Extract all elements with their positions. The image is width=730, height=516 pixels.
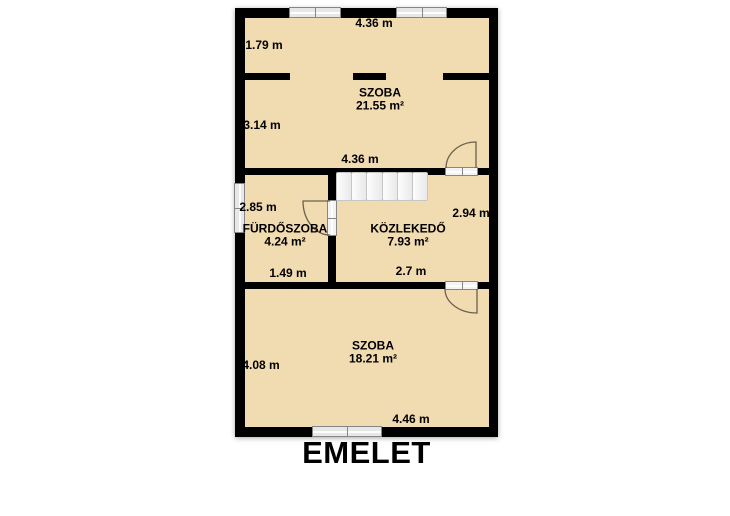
knee-wall-right-segment xyxy=(443,73,489,80)
stair-step xyxy=(366,172,382,201)
room-label-furdoszoba: FÜRDŐSZOBA 4.24 m² xyxy=(243,223,328,248)
knee-wall-middle-segment xyxy=(353,73,386,80)
floor-plan-title: EMELET xyxy=(235,436,498,469)
room-area: 7.93 m² xyxy=(370,235,445,248)
dimension-label-furdoszoba-height: 2.85 m xyxy=(239,200,276,214)
room-area: 21.55 m² xyxy=(356,99,404,112)
room-area: 18.21 m² xyxy=(349,352,397,365)
floor-plan-canvas: 4.36 m 1.79 m 3.14 m 4.36 m 2.85 m 1.49 … xyxy=(0,0,730,516)
stair-step xyxy=(412,172,428,201)
window-top-left xyxy=(289,7,341,18)
door-opening-szoba-bottom xyxy=(445,281,478,290)
dimension-label-furdoszoba-width: 1.49 m xyxy=(269,266,306,280)
stairs xyxy=(336,172,428,201)
door-opening-furdoszoba xyxy=(327,200,337,236)
stair-step xyxy=(397,172,413,201)
window-top-right xyxy=(396,7,447,18)
room-name: SZOBA xyxy=(349,340,397,353)
room-name: FÜRDŐSZOBA xyxy=(243,223,328,236)
stair-step xyxy=(382,172,398,201)
knee-wall-left-segment xyxy=(245,73,290,80)
room-label-kozlekedo: KÖZLEKEDŐ 7.93 m² xyxy=(370,223,445,248)
dimension-label-szoba-bottom-height: 4.08 m xyxy=(242,358,279,372)
room-name: KÖZLEKEDŐ xyxy=(370,223,445,236)
dimension-label-szoba-top-width: 4.36 m xyxy=(341,152,378,166)
stair-step xyxy=(336,172,352,201)
room-area: 4.24 m² xyxy=(243,235,328,248)
door-opening-szoba-top xyxy=(445,167,478,176)
room-label-szoba-top: SZOBA 21.55 m² xyxy=(356,87,404,112)
dimension-label-kozlekedo-height: 2.94 m xyxy=(452,206,489,220)
stair-step xyxy=(351,172,367,201)
room-name: SZOBA xyxy=(356,87,404,100)
dimension-label-szoba-bottom-width: 4.46 m xyxy=(392,412,429,426)
room-label-szoba-bottom: SZOBA 18.21 m² xyxy=(349,340,397,365)
dimension-label-attic-height: 1.79 m xyxy=(245,38,282,52)
dimension-label-szoba-top-height: 3.14 m xyxy=(243,118,280,132)
dimension-label-top-width: 4.36 m xyxy=(355,16,392,30)
dimension-label-kozlekedo-width: 2.7 m xyxy=(396,264,427,278)
